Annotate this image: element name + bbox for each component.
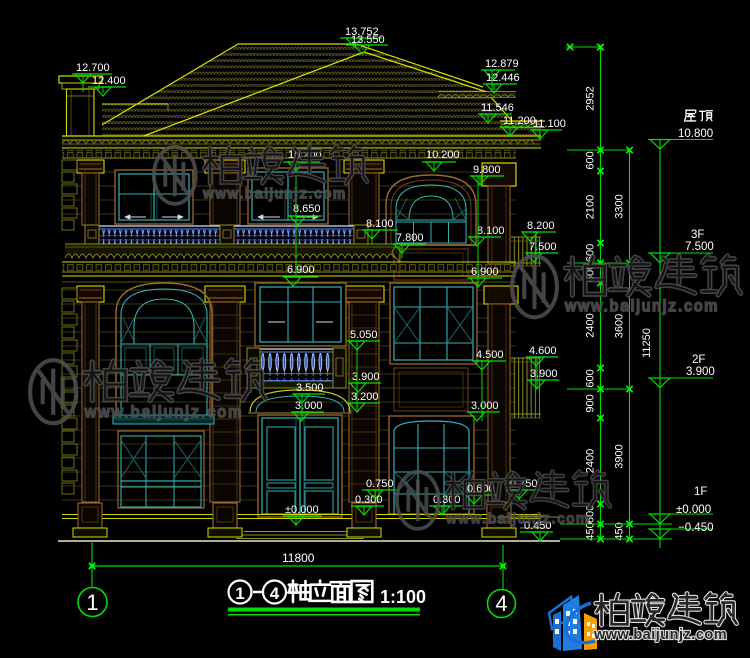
svg-text:3.500: 3.500: [296, 382, 324, 394]
svg-text:4.600: 4.600: [529, 345, 557, 357]
svg-text:0.300: 0.300: [355, 494, 383, 506]
svg-text:www.baijunjz.com: www.baijunjz.com: [84, 404, 244, 421]
svg-text:4.500: 4.500: [476, 349, 504, 361]
svg-text:10.800: 10.800: [678, 128, 713, 140]
svg-text:7.500: 7.500: [529, 241, 557, 253]
svg-text:±0.000: ±0.000: [285, 504, 319, 516]
svg-text:8.100: 8.100: [366, 218, 394, 230]
svg-text:5.050: 5.050: [350, 329, 378, 341]
svg-text:2952: 2952: [585, 86, 597, 110]
svg-text:1:100: 1:100: [380, 587, 426, 607]
svg-text:www.baijunjz.com: www.baijunjz.com: [593, 627, 727, 643]
svg-text:7.500: 7.500: [685, 241, 714, 253]
svg-text:11250: 11250: [641, 328, 653, 358]
svg-text:8.200: 8.200: [527, 220, 555, 232]
svg-text:12.879: 12.879: [485, 58, 519, 70]
svg-text:450: 450: [614, 522, 626, 540]
svg-text:3.200: 3.200: [351, 391, 379, 403]
svg-text:2100: 2100: [585, 195, 597, 219]
svg-text:12.400: 12.400: [92, 75, 126, 87]
svg-text:8.650: 8.650: [293, 203, 321, 215]
svg-text:3.000: 3.000: [295, 400, 323, 412]
svg-text:3.900: 3.900: [686, 366, 715, 378]
svg-text:11800: 11800: [282, 551, 315, 565]
svg-text:4: 4: [495, 591, 507, 616]
svg-text:2400: 2400: [585, 313, 597, 337]
svg-text:2400: 2400: [585, 449, 597, 473]
svg-text:3.900: 3.900: [530, 368, 558, 380]
svg-text:7.800: 7.800: [396, 232, 424, 244]
svg-text:3F: 3F: [691, 229, 704, 241]
svg-text:11.100: 11.100: [533, 118, 566, 130]
svg-text:9.800: 9.800: [473, 164, 501, 176]
svg-text:900: 900: [585, 394, 597, 412]
svg-text:600: 600: [585, 369, 597, 387]
svg-text:13.550: 13.550: [351, 34, 385, 46]
svg-text:12.700: 12.700: [76, 62, 110, 74]
svg-text:4: 4: [270, 584, 280, 603]
svg-text:8.100: 8.100: [477, 225, 505, 237]
svg-text:10.200: 10.200: [426, 149, 460, 161]
svg-text:0.750: 0.750: [366, 478, 394, 490]
svg-text:1F: 1F: [694, 486, 707, 498]
svg-text:±0.000: ±0.000: [676, 504, 711, 516]
svg-text:11.200: 11.200: [503, 115, 536, 127]
svg-text:www.baijunjz.com: www.baijunjz.com: [564, 298, 719, 315]
svg-text:600: 600: [585, 151, 597, 169]
svg-text:2F: 2F: [692, 354, 705, 366]
svg-text:−0.450: −0.450: [678, 522, 714, 534]
svg-text:1: 1: [235, 584, 244, 603]
svg-text:www.baijunjz.com: www.baijunjz.com: [202, 186, 347, 202]
svg-text:3.000: 3.000: [471, 400, 499, 412]
svg-text:3.900: 3.900: [352, 371, 380, 383]
svg-text:3600: 3600: [614, 314, 626, 338]
svg-text:11.546: 11.546: [481, 102, 514, 114]
svg-text:1: 1: [86, 590, 98, 615]
svg-text:www.baijunjz.com: www.baijunjz.com: [445, 511, 590, 527]
svg-text:3300: 3300: [614, 194, 626, 218]
svg-text:6.900: 6.900: [287, 264, 315, 276]
svg-text:12.446: 12.446: [486, 72, 520, 84]
svg-text:3900: 3900: [614, 444, 626, 468]
svg-text:6.900: 6.900: [471, 266, 499, 278]
